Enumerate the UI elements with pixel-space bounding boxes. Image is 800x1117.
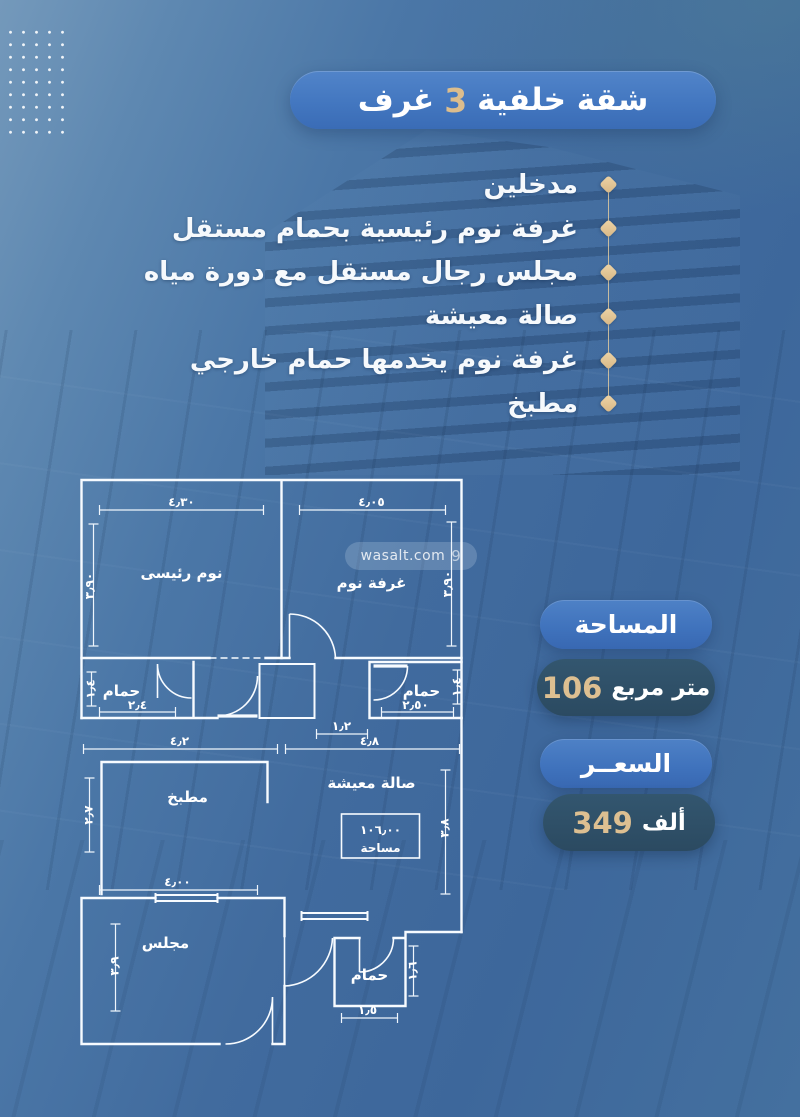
plan-walls [82, 480, 462, 1044]
floor-plan-drawing: ٤٫٣٠ ٤٫٠٥ ٣٫٩٠ ٣٫٩٠ نوم رئيسى غرفة نوم ح… [68, 466, 486, 1066]
diamond-bullet-icon [599, 351, 617, 369]
feature-label: مطبخ [507, 389, 578, 419]
dim-master-width: ٤٫٣٠ [168, 495, 194, 509]
dim-overall-right: ٤٫٨ [360, 734, 380, 748]
dim-bath-left-height: ١٫٤ [84, 679, 98, 698]
diamond-bullet-icon [599, 263, 617, 281]
dim-bath-bottom-height: ١٫٦ [406, 961, 420, 980]
feature-list: مدخلين غرفة نوم رئيسية بحمام مستقل مجلس … [144, 163, 617, 426]
area-title-pill: المساحة [540, 600, 712, 649]
dim-majlis-width: ٤٫٠٠ [164, 875, 190, 889]
feature-label: غرفة نوم رئيسية بحمام مستقل [172, 214, 578, 244]
living-area-value: ١٠٦٫٠٠ [360, 823, 401, 837]
feature-label: مجلس رجال مستقل مع دورة مياه [144, 257, 578, 287]
title-prefix: شقة خلفية [477, 82, 648, 118]
feature-item: صالة معيشة [144, 294, 617, 338]
dim-bath-right-width: ٢٫٥٠ [402, 698, 428, 712]
area-unit: متر مربع [611, 675, 710, 701]
feature-item: مجلس رجال مستقل مع دورة مياه [144, 251, 617, 295]
label-bath-bottom: حمام [351, 966, 389, 984]
label-bedroom: غرفة نوم [337, 574, 407, 592]
dim-corridor: ١٫٢ [332, 719, 352, 733]
label-kitchen: مطبخ [167, 788, 208, 806]
title-pill: شقة خلفية 3 غرف [290, 71, 716, 129]
feature-item: مطبخ [144, 382, 617, 426]
label-master-bedroom: نوم رئيسى [140, 564, 222, 582]
dim-bath-right-height: ١٫٤ [450, 677, 464, 696]
dim-overall-left: ٤٫٢ [170, 734, 190, 748]
dim-bath-left-width: ٢٫٤ [128, 698, 147, 712]
price-unit: ألف [642, 810, 686, 836]
price-title-pill: السعــر [540, 739, 712, 788]
dim-bath-bottom-width: ١٫٥ [358, 1003, 377, 1017]
floor-plan: ٤٫٣٠ ٤٫٠٥ ٣٫٩٠ ٣٫٩٠ نوم رئيسى غرفة نوم ح… [68, 466, 486, 1066]
title-room-count: 3 [444, 81, 467, 120]
price-value: 349 [572, 806, 633, 840]
feature-label: مدخلين [484, 170, 578, 200]
dim-kitchen-height: ٢٫٧ [82, 805, 96, 825]
feature-item: مدخلين [144, 163, 617, 207]
dim-bedroom-height: ٣٫٩٠ [441, 571, 455, 597]
living-area-word: مساحة [360, 841, 400, 855]
dim-living-height: ٣٫٨ [438, 818, 452, 838]
feature-label: صالة معيشة [425, 301, 578, 331]
feature-item: غرفة نوم رئيسية بحمام مستقل [144, 207, 617, 251]
label-living: صالة معيشة [327, 774, 415, 792]
diamond-bullet-icon [599, 395, 617, 413]
flyer-canvas: شقة خلفية 3 غرف مدخلين غرفة نوم رئيسية ب… [0, 0, 800, 1117]
diamond-bullet-icon [599, 176, 617, 194]
dim-majlis-height: ٣٫٩ [108, 956, 122, 976]
decorative-dot-grid [4, 26, 68, 140]
price-title: السعــر [581, 749, 671, 778]
price-value-pill: 349 ألف [543, 794, 715, 851]
area-value: 106 [542, 671, 603, 705]
diamond-bullet-icon [599, 220, 617, 238]
feature-label: غرفة نوم يخدمها حمام خارجي [190, 345, 578, 375]
area-title: المساحة [575, 610, 678, 639]
title-suffix: غرف [358, 82, 434, 118]
dim-bedroom-width: ٤٫٠٥ [358, 495, 384, 509]
dim-master-height: ٣٫٩٠ [83, 573, 97, 599]
area-value-pill: 106 متر مربع [537, 659, 715, 716]
diamond-bullet-icon [599, 307, 617, 325]
feature-item: غرفة نوم يخدمها حمام خارجي [144, 338, 617, 382]
label-majlis: مجلس [142, 934, 189, 952]
